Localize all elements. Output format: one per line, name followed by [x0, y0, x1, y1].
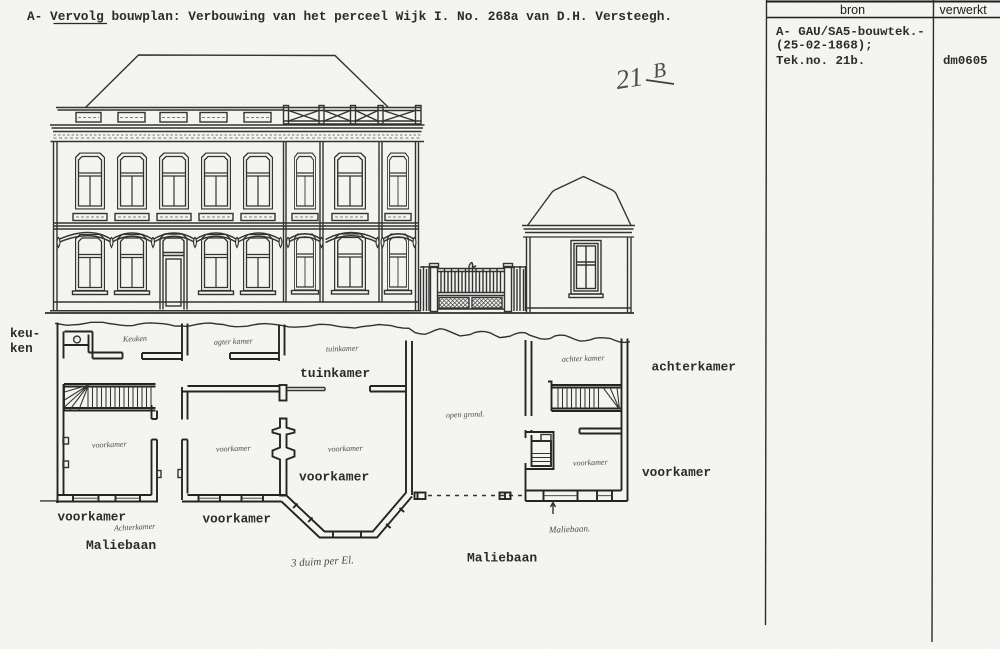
svg-text:(25-02-1868);: (25-02-1868); — [776, 39, 873, 53]
svg-text:keu-: keu- — [10, 327, 40, 341]
svg-text:voorkamer: voorkamer — [328, 443, 364, 453]
svg-text:A- Vervolg bouwplan: Verbouwin: A- Vervolg bouwplan: Verbouwing van het … — [27, 9, 672, 24]
svg-text:tuinkamer: tuinkamer — [326, 343, 360, 353]
svg-text:voorkamer: voorkamer — [642, 465, 711, 480]
svg-text:achter kamer: achter kamer — [562, 353, 606, 364]
svg-text:voorkamer: voorkamer — [58, 510, 127, 525]
svg-text:dm0605: dm0605 — [943, 54, 988, 68]
svg-text:ken: ken — [10, 342, 33, 356]
svg-text:voorkamer: voorkamer — [573, 457, 609, 467]
svg-text:tuinkamer: tuinkamer — [300, 366, 370, 381]
svg-text:Keuken: Keuken — [122, 334, 147, 344]
svg-text:Maliebaan: Maliebaan — [467, 551, 537, 566]
svg-text:verwerkt: verwerkt — [940, 3, 988, 17]
svg-text:21: 21 — [614, 61, 645, 95]
svg-text:voorkamer: voorkamer — [216, 443, 252, 453]
svg-text:achterkamer: achterkamer — [652, 360, 736, 375]
svg-text:voorkamer: voorkamer — [92, 439, 128, 449]
svg-text:bron: bron — [840, 3, 865, 17]
svg-text:Maliebaan.: Maliebaan. — [548, 523, 591, 534]
svg-text:open grond.: open grond. — [446, 409, 485, 419]
svg-text:A- GAU/SA5-bouwtek.-: A- GAU/SA5-bouwtek.- — [776, 25, 925, 39]
svg-text:Maliebaan: Maliebaan — [86, 538, 156, 553]
svg-text:voorkamer: voorkamer — [203, 512, 272, 527]
svg-text:Tek.no. 21b.: Tek.no. 21b. — [776, 54, 865, 68]
svg-text:voorkamer: voorkamer — [299, 470, 369, 485]
svg-text:agter kamer: agter kamer — [214, 336, 254, 346]
